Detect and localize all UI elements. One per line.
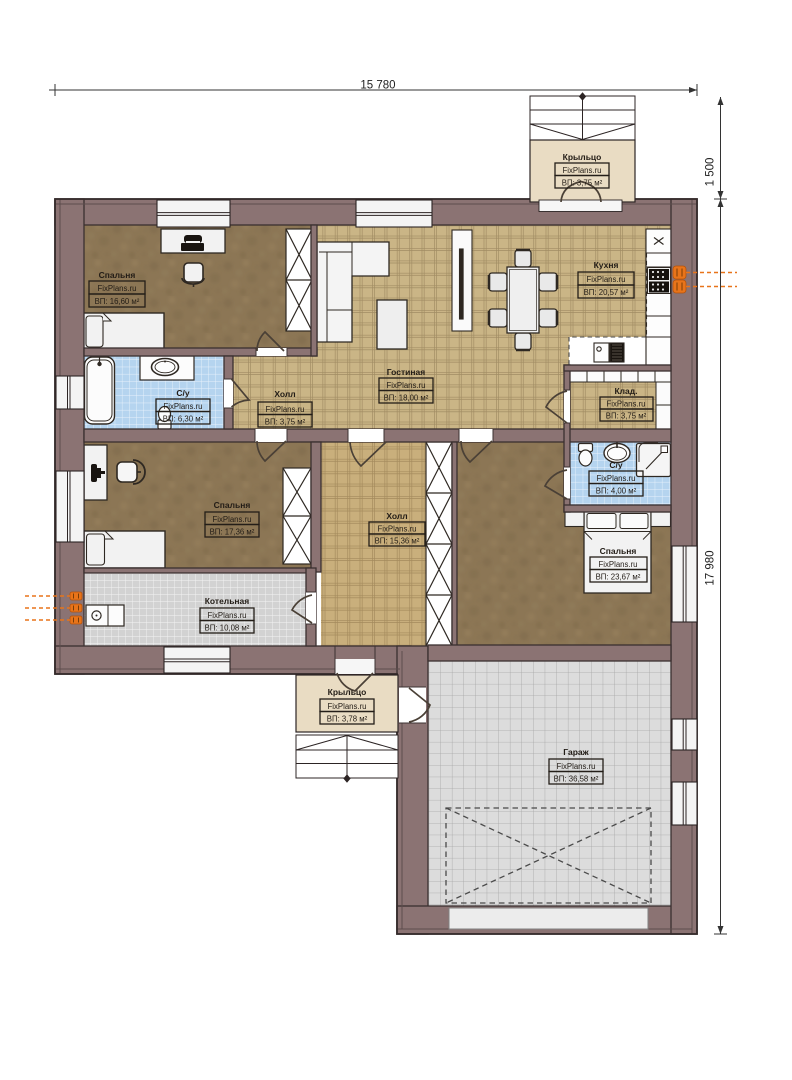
svg-text:Крыльцо: Крыльцо [328,687,367,697]
svg-text:1 500: 1 500 [705,158,717,187]
svg-text:ВП: 20,57 м²: ВП: 20,57 м² [584,288,629,297]
svg-text:Котельная: Котельная [205,596,250,606]
svg-text:FixPlans.ru: FixPlans.ru [557,762,596,771]
svg-text:ВП: 3,75 м²: ВП: 3,75 м² [562,178,603,187]
svg-text:FixPlans.ru: FixPlans.ru [387,381,426,390]
svg-text:FixPlans.ru: FixPlans.ru [563,166,602,175]
svg-text:ВП: 10,08 м²: ВП: 10,08 м² [205,623,250,632]
svg-text:Гараж: Гараж [563,747,589,757]
svg-text:Спальня: Спальня [600,546,637,556]
svg-text:FixPlans.ru: FixPlans.ru [213,515,252,524]
svg-text:Крыльцо: Крыльцо [563,152,602,162]
svg-text:ВП: 23,67 м²: ВП: 23,67 м² [596,572,641,581]
svg-text:FixPlans.ru: FixPlans.ru [587,275,626,284]
svg-text:ВП: 6,30 м²: ВП: 6,30 м² [163,414,204,423]
svg-text:FixPlans.ru: FixPlans.ru [607,399,646,408]
svg-text:ВП: 16,60 м²: ВП: 16,60 м² [95,297,140,306]
svg-text:15 780: 15 780 [360,80,395,92]
svg-text:Гостиная: Гостиная [387,367,425,377]
svg-text:FixPlans.ru: FixPlans.ru [599,560,638,569]
svg-text:ВП: 3,75 м²: ВП: 3,75 м² [265,417,306,426]
svg-text:Холл: Холл [386,511,407,521]
svg-text:17 980: 17 980 [705,550,717,585]
svg-text:ВП: 3,75 м²: ВП: 3,75 м² [606,411,647,420]
svg-text:Холл: Холл [274,389,295,399]
svg-text:FixPlans.ru: FixPlans.ru [328,702,367,711]
svg-text:FixPlans.ru: FixPlans.ru [208,611,247,620]
svg-text:FixPlans.ru: FixPlans.ru [597,474,636,483]
svg-text:FixPlans.ru: FixPlans.ru [98,284,137,293]
svg-text:ВП: 18,00 м²: ВП: 18,00 м² [384,393,429,402]
svg-text:FixPlans.ru: FixPlans.ru [164,402,203,411]
svg-text:ВП: 15,36 м²: ВП: 15,36 м² [375,536,420,545]
svg-text:ВП: 4,00 м²: ВП: 4,00 м² [596,486,637,495]
svg-text:Спальня: Спальня [214,500,251,510]
svg-text:FixPlans.ru: FixPlans.ru [266,405,305,414]
svg-text:С/у: С/у [609,460,623,470]
svg-text:Клад.: Клад. [614,386,637,396]
svg-text:ВП: 36,58 м²: ВП: 36,58 м² [554,774,599,783]
svg-text:ВП: 17,36 м²: ВП: 17,36 м² [210,527,255,536]
svg-text:Кухня: Кухня [594,260,619,270]
svg-text:С/у: С/у [176,388,190,398]
svg-text:Спальня: Спальня [99,270,136,280]
svg-text:ВП: 3,78 м²: ВП: 3,78 м² [327,714,368,723]
svg-text:FixPlans.ru: FixPlans.ru [378,524,417,533]
